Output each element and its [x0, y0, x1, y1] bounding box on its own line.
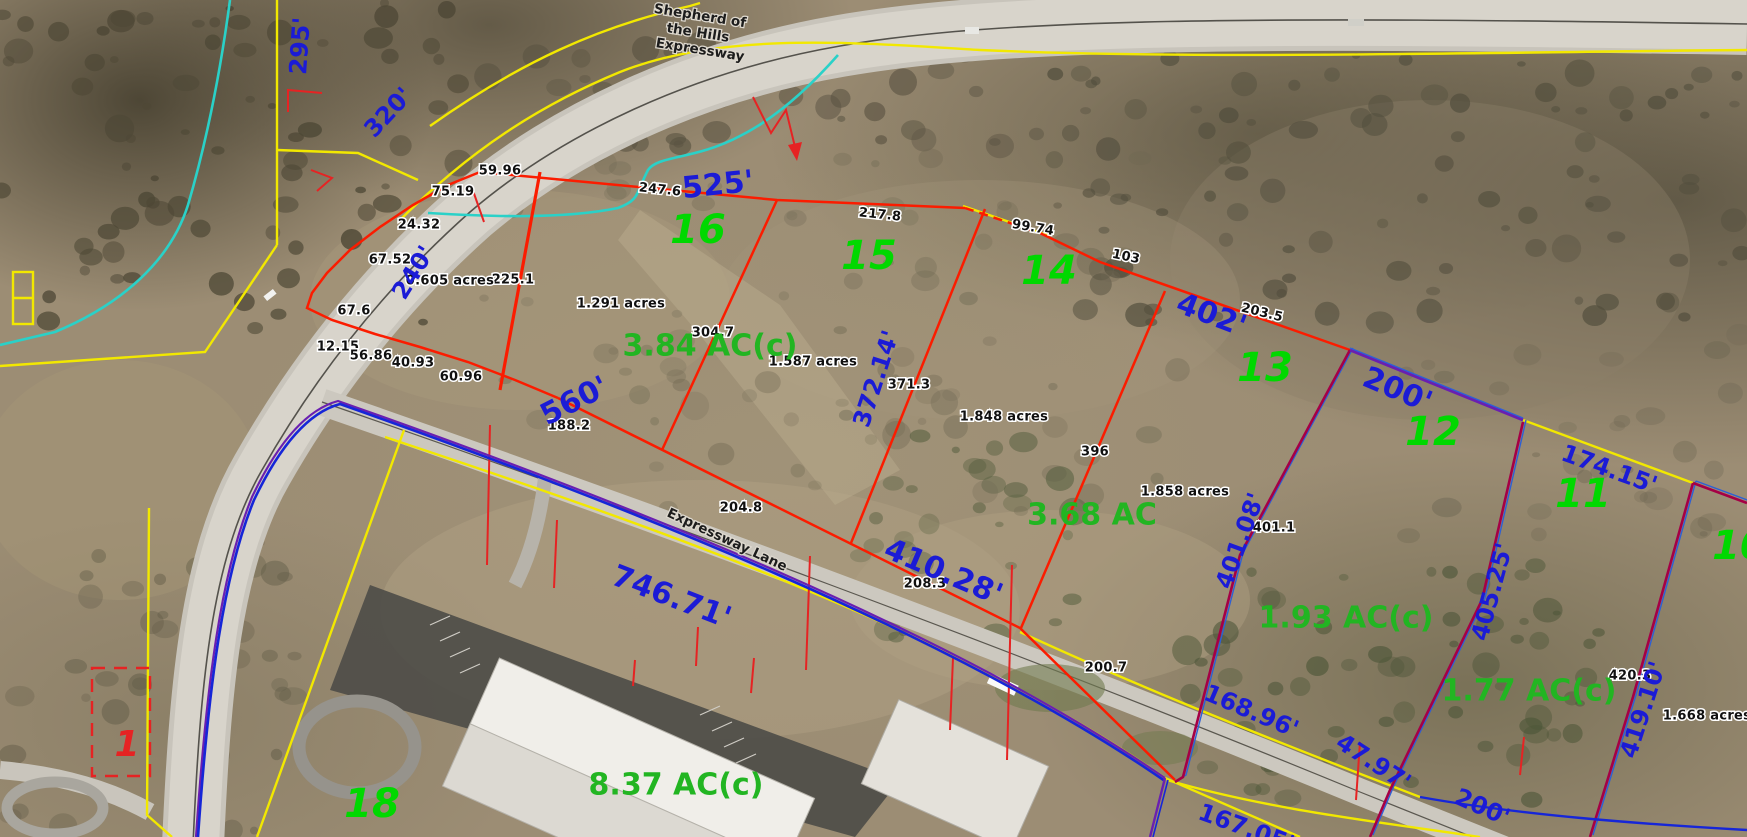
- tree: [1435, 155, 1454, 171]
- tree: [1096, 137, 1120, 161]
- tree: [151, 175, 159, 181]
- tree: [1531, 528, 1547, 542]
- tree: [1533, 598, 1563, 623]
- tree: [1648, 96, 1667, 110]
- tree: [5, 686, 34, 707]
- tree: [181, 129, 190, 135]
- boundary-segment: [0, 245, 277, 366]
- tree: [1136, 426, 1162, 443]
- tree: [1197, 761, 1218, 775]
- tree: [1553, 611, 1561, 616]
- tree: [279, 687, 307, 705]
- tree: [1547, 728, 1562, 741]
- map-label: 1.291 acres: [577, 297, 665, 312]
- tree: [1426, 567, 1436, 577]
- tree: [1567, 165, 1584, 178]
- tree: [1309, 231, 1333, 253]
- map-label: 12: [1405, 409, 1461, 455]
- tree: [81, 694, 91, 702]
- map-label: 1.93 AC(c): [1259, 601, 1434, 636]
- tree: [110, 56, 119, 63]
- tree: [864, 102, 885, 121]
- tree: [1194, 658, 1207, 667]
- tree: [1073, 299, 1098, 320]
- tree: [37, 312, 60, 331]
- tree: [1324, 68, 1340, 82]
- tree: [1288, 80, 1300, 91]
- tree: [1029, 128, 1044, 140]
- tree: [110, 274, 124, 284]
- tree: [381, 49, 399, 64]
- tree: [270, 309, 286, 320]
- tree: [1449, 641, 1458, 648]
- tree: [995, 522, 1004, 528]
- map-label: 75.19: [432, 185, 475, 200]
- car: [263, 289, 276, 301]
- tree: [1592, 628, 1605, 637]
- tree: [918, 418, 927, 425]
- tree: [1565, 59, 1595, 86]
- map-label: 3.68 AC: [1027, 498, 1157, 533]
- map-label: 60.96: [440, 370, 483, 385]
- tree: [1341, 659, 1357, 671]
- tree: [1518, 207, 1537, 224]
- tree: [1276, 289, 1286, 298]
- tree: [233, 43, 256, 57]
- tree: [1350, 108, 1371, 128]
- tree: [136, 12, 153, 25]
- map-label: 1.77 AC(c): [1442, 674, 1617, 709]
- tree: [1589, 175, 1600, 183]
- tree: [105, 115, 134, 143]
- tree: [287, 652, 301, 661]
- tree: [1080, 107, 1091, 114]
- tree: [791, 464, 805, 478]
- map-label: 295': [284, 16, 316, 75]
- tree: [1575, 297, 1584, 305]
- tree: [1397, 528, 1420, 543]
- boundary-ne: [1693, 483, 1747, 503]
- tree: [154, 574, 166, 586]
- map-label: 40.93: [392, 356, 435, 371]
- purple-stub: [1150, 778, 1165, 837]
- tree: [1489, 382, 1509, 396]
- tree: [1386, 261, 1411, 281]
- tree: [869, 512, 883, 524]
- tree: [1091, 76, 1101, 85]
- tree: [1501, 225, 1510, 231]
- tree: [91, 549, 106, 563]
- tree: [871, 160, 879, 167]
- tree: [1227, 203, 1249, 221]
- tree: [571, 49, 590, 68]
- tree: [1255, 783, 1270, 795]
- tree: [836, 399, 849, 407]
- tree: [355, 187, 366, 194]
- tree: [1180, 684, 1201, 704]
- car: [1348, 19, 1364, 26]
- tree: [1656, 293, 1675, 310]
- tree: [277, 572, 293, 582]
- map-label: 8.37 AC(c): [589, 768, 764, 803]
- tree: [674, 140, 684, 147]
- tree: [1525, 239, 1546, 257]
- tree: [1306, 656, 1329, 676]
- tree: [784, 412, 799, 426]
- tree: [1226, 141, 1251, 163]
- creek-west: [0, 0, 230, 345]
- tree: [973, 502, 986, 513]
- tree: [983, 336, 997, 346]
- tree: [1439, 263, 1453, 274]
- tree: [122, 581, 144, 597]
- tree: [755, 371, 781, 393]
- tree: [479, 295, 488, 302]
- tree: [942, 388, 960, 401]
- tree: [918, 149, 943, 169]
- tree: [910, 430, 931, 443]
- tree: [173, 75, 200, 91]
- tree: [997, 200, 1012, 210]
- tree: [74, 238, 93, 255]
- tree: [865, 434, 877, 445]
- tree: [672, 310, 683, 318]
- map-label: 320': [358, 82, 418, 143]
- tree: [649, 462, 664, 472]
- tree: [85, 54, 105, 71]
- map-canvas: 59.9675.1924.3267.5267.612.1556.8640.936…: [0, 0, 1747, 837]
- tree: [288, 240, 303, 254]
- tree: [952, 447, 960, 454]
- tree: [1636, 407, 1665, 425]
- tree: [834, 326, 847, 334]
- tree: [1700, 112, 1709, 119]
- tree: [579, 75, 590, 83]
- tree: [1691, 67, 1712, 83]
- tree: [102, 699, 130, 724]
- tree: [1434, 371, 1455, 383]
- tree: [381, 183, 390, 189]
- tree: [1678, 312, 1690, 321]
- tree: [1339, 574, 1349, 581]
- tree: [1517, 61, 1526, 66]
- tree: [1563, 724, 1583, 743]
- tree: [1585, 196, 1611, 212]
- tree: [142, 103, 151, 110]
- tree: [1732, 71, 1743, 81]
- tree: [1231, 72, 1257, 96]
- tree: [989, 138, 1001, 146]
- map-label: 225.1: [492, 273, 535, 288]
- out-building: [861, 700, 1048, 837]
- tree: [1575, 132, 1596, 152]
- tree: [742, 389, 757, 402]
- tree: [1219, 107, 1239, 123]
- tree: [1451, 131, 1465, 142]
- car: [965, 27, 979, 34]
- tree: [1368, 95, 1393, 117]
- tree: [1377, 219, 1388, 229]
- tree: [1552, 235, 1581, 263]
- tree: [708, 443, 734, 466]
- corner-mark: [311, 170, 332, 191]
- tree: [702, 121, 731, 143]
- tree: [65, 659, 87, 674]
- tree: [1665, 88, 1678, 99]
- tree: [875, 135, 887, 144]
- tree: [1535, 83, 1557, 102]
- map-label: 13: [1237, 345, 1293, 391]
- tree: [521, 297, 534, 307]
- tree: [779, 291, 790, 300]
- tree: [1669, 254, 1688, 267]
- map-label: 24.32: [398, 218, 441, 233]
- map-label: 14: [1021, 248, 1077, 294]
- tree: [1478, 741, 1494, 752]
- tree: [1575, 107, 1587, 114]
- tree: [1204, 191, 1216, 202]
- tree: [102, 241, 124, 263]
- tree: [277, 268, 300, 288]
- tree: [1062, 125, 1079, 142]
- tree: [48, 22, 69, 42]
- map-label: 18: [344, 781, 400, 827]
- tree: [1718, 260, 1728, 266]
- tree: [1053, 202, 1062, 208]
- tree: [1426, 287, 1440, 296]
- map-label: 525': [680, 164, 755, 206]
- tree: [986, 134, 1014, 159]
- tree: [1393, 701, 1415, 722]
- tree: [986, 440, 1003, 455]
- tree: [1684, 84, 1694, 91]
- tree: [975, 234, 993, 250]
- map-label: 59.96: [479, 164, 522, 179]
- circle-drive: [299, 701, 415, 793]
- tree: [1315, 302, 1340, 326]
- tree: [227, 15, 251, 30]
- tree: [815, 95, 841, 120]
- tree: [95, 671, 119, 686]
- tree: [1527, 503, 1552, 520]
- map-label: 401.08': [1210, 489, 1271, 593]
- tree: [808, 480, 822, 490]
- tree: [298, 122, 322, 137]
- tree: [1290, 677, 1310, 696]
- tree: [1090, 178, 1110, 196]
- map-label: 200.7: [1085, 661, 1128, 676]
- tree: [619, 368, 632, 376]
- tree: [145, 201, 175, 226]
- tree: [1609, 86, 1634, 109]
- tree: [1165, 358, 1190, 381]
- tree: [80, 570, 94, 581]
- tree: [211, 146, 224, 155]
- tree: [1014, 506, 1028, 516]
- tree: [1289, 121, 1318, 139]
- tree: [1198, 122, 1215, 139]
- tree: [80, 266, 90, 276]
- tree: [1421, 84, 1448, 105]
- tree: [1450, 94, 1470, 113]
- tree: [1521, 792, 1542, 808]
- tree: [1551, 106, 1560, 112]
- tree: [4, 39, 33, 64]
- tree: [341, 229, 363, 250]
- tree: [1583, 639, 1596, 649]
- tree: [1607, 231, 1625, 242]
- tree: [390, 135, 412, 156]
- tree: [0, 10, 11, 20]
- tree: [1246, 119, 1256, 126]
- map-label: 1.668 acres: [1663, 709, 1747, 724]
- tree: [209, 17, 220, 27]
- tree: [1519, 618, 1529, 625]
- map-label: 1.848 acres: [960, 410, 1048, 425]
- tree: [1110, 194, 1128, 205]
- tree: [271, 749, 283, 760]
- tree: [1049, 618, 1062, 626]
- tree: [1599, 352, 1624, 367]
- map-label: 11: [1555, 471, 1611, 517]
- tree: [1532, 452, 1540, 457]
- tree: [0, 183, 11, 199]
- corner-mark: [288, 90, 322, 112]
- tree: [250, 827, 258, 835]
- tree: [1417, 193, 1428, 203]
- tree: [1704, 341, 1730, 359]
- tree: [1071, 66, 1091, 82]
- tree: [444, 150, 472, 177]
- tree: [1721, 208, 1747, 232]
- map-label: 67.6: [337, 304, 370, 319]
- tree: [364, 27, 393, 48]
- tree: [111, 207, 139, 230]
- tree: [680, 392, 709, 421]
- map-label: 371.3: [888, 378, 931, 393]
- tree: [205, 35, 221, 50]
- tree: [17, 16, 34, 32]
- tree: [1004, 482, 1028, 498]
- tree: [1523, 725, 1549, 743]
- tree: [1219, 233, 1233, 247]
- map-label: 204.8: [720, 501, 763, 516]
- tree: [42, 290, 56, 303]
- tree: [837, 116, 845, 122]
- tree: [358, 204, 376, 221]
- tree: [650, 417, 659, 426]
- tree: [1704, 461, 1724, 480]
- tree: [1366, 311, 1394, 333]
- map-label: 56.86: [350, 349, 393, 364]
- tree: [373, 195, 402, 213]
- tree: [1124, 99, 1146, 120]
- tree: [1190, 105, 1202, 113]
- tree: [1048, 383, 1057, 390]
- map-label: 247.6: [638, 180, 682, 199]
- tree: [1514, 569, 1529, 580]
- tree: [1729, 101, 1740, 108]
- tree: [418, 319, 428, 326]
- tree: [1620, 109, 1633, 121]
- tree: [1417, 299, 1443, 323]
- tree: [433, 54, 444, 65]
- tree: [268, 103, 277, 109]
- tree: [604, 186, 627, 201]
- tree: [911, 128, 936, 151]
- tree: [629, 385, 650, 404]
- divider-11-10: [1590, 483, 1693, 837]
- tree: [474, 63, 501, 90]
- tree: [1047, 68, 1063, 81]
- tree: [784, 210, 807, 227]
- tree: [546, 79, 571, 96]
- aerial-plat-map: 59.9675.1924.3267.5267.612.1556.8640.936…: [0, 0, 1747, 837]
- tree: [78, 585, 103, 609]
- tree: [1009, 432, 1038, 452]
- tree: [959, 292, 978, 305]
- tree: [972, 480, 998, 503]
- tree: [1368, 646, 1392, 663]
- tree: [672, 379, 690, 391]
- tree: [1513, 344, 1541, 366]
- tree: [1046, 466, 1074, 491]
- tree: [1151, 473, 1164, 485]
- tree: [1525, 558, 1545, 573]
- tree: [1282, 245, 1294, 253]
- tree: [1673, 441, 1697, 463]
- tree: [1046, 151, 1063, 168]
- tree: [281, 164, 302, 181]
- tree: [883, 476, 904, 491]
- tree: [1478, 191, 1500, 207]
- tree: [428, 100, 448, 115]
- map-label: 396: [1081, 445, 1109, 460]
- tree: [1225, 166, 1249, 180]
- tree: [438, 1, 456, 18]
- blue-stub: [1153, 780, 1168, 837]
- tree: [111, 10, 136, 27]
- tree: [1443, 612, 1461, 627]
- tree: [245, 96, 254, 103]
- map-label: 10: [1712, 523, 1747, 569]
- map-label: 15: [841, 233, 897, 279]
- tree: [1506, 744, 1530, 767]
- tree: [1268, 682, 1284, 696]
- tree: [889, 69, 917, 96]
- tree: [1246, 567, 1256, 577]
- tree: [317, 39, 329, 47]
- tree: [262, 650, 278, 662]
- tree: [1582, 305, 1607, 326]
- tree: [1101, 270, 1120, 282]
- tree: [191, 220, 211, 238]
- tree: [969, 86, 983, 97]
- tree: [247, 322, 263, 334]
- tree: [833, 153, 852, 166]
- arrowhead: [788, 142, 802, 161]
- tree: [1510, 635, 1523, 644]
- tree: [1156, 208, 1168, 216]
- tree: [157, 611, 168, 619]
- tree: [906, 485, 918, 493]
- tree: [1432, 498, 1462, 518]
- map-label: 1: [114, 724, 139, 765]
- tree: [1421, 360, 1435, 370]
- tree: [374, 5, 398, 28]
- tree: [1679, 182, 1699, 194]
- tree: [1399, 54, 1413, 66]
